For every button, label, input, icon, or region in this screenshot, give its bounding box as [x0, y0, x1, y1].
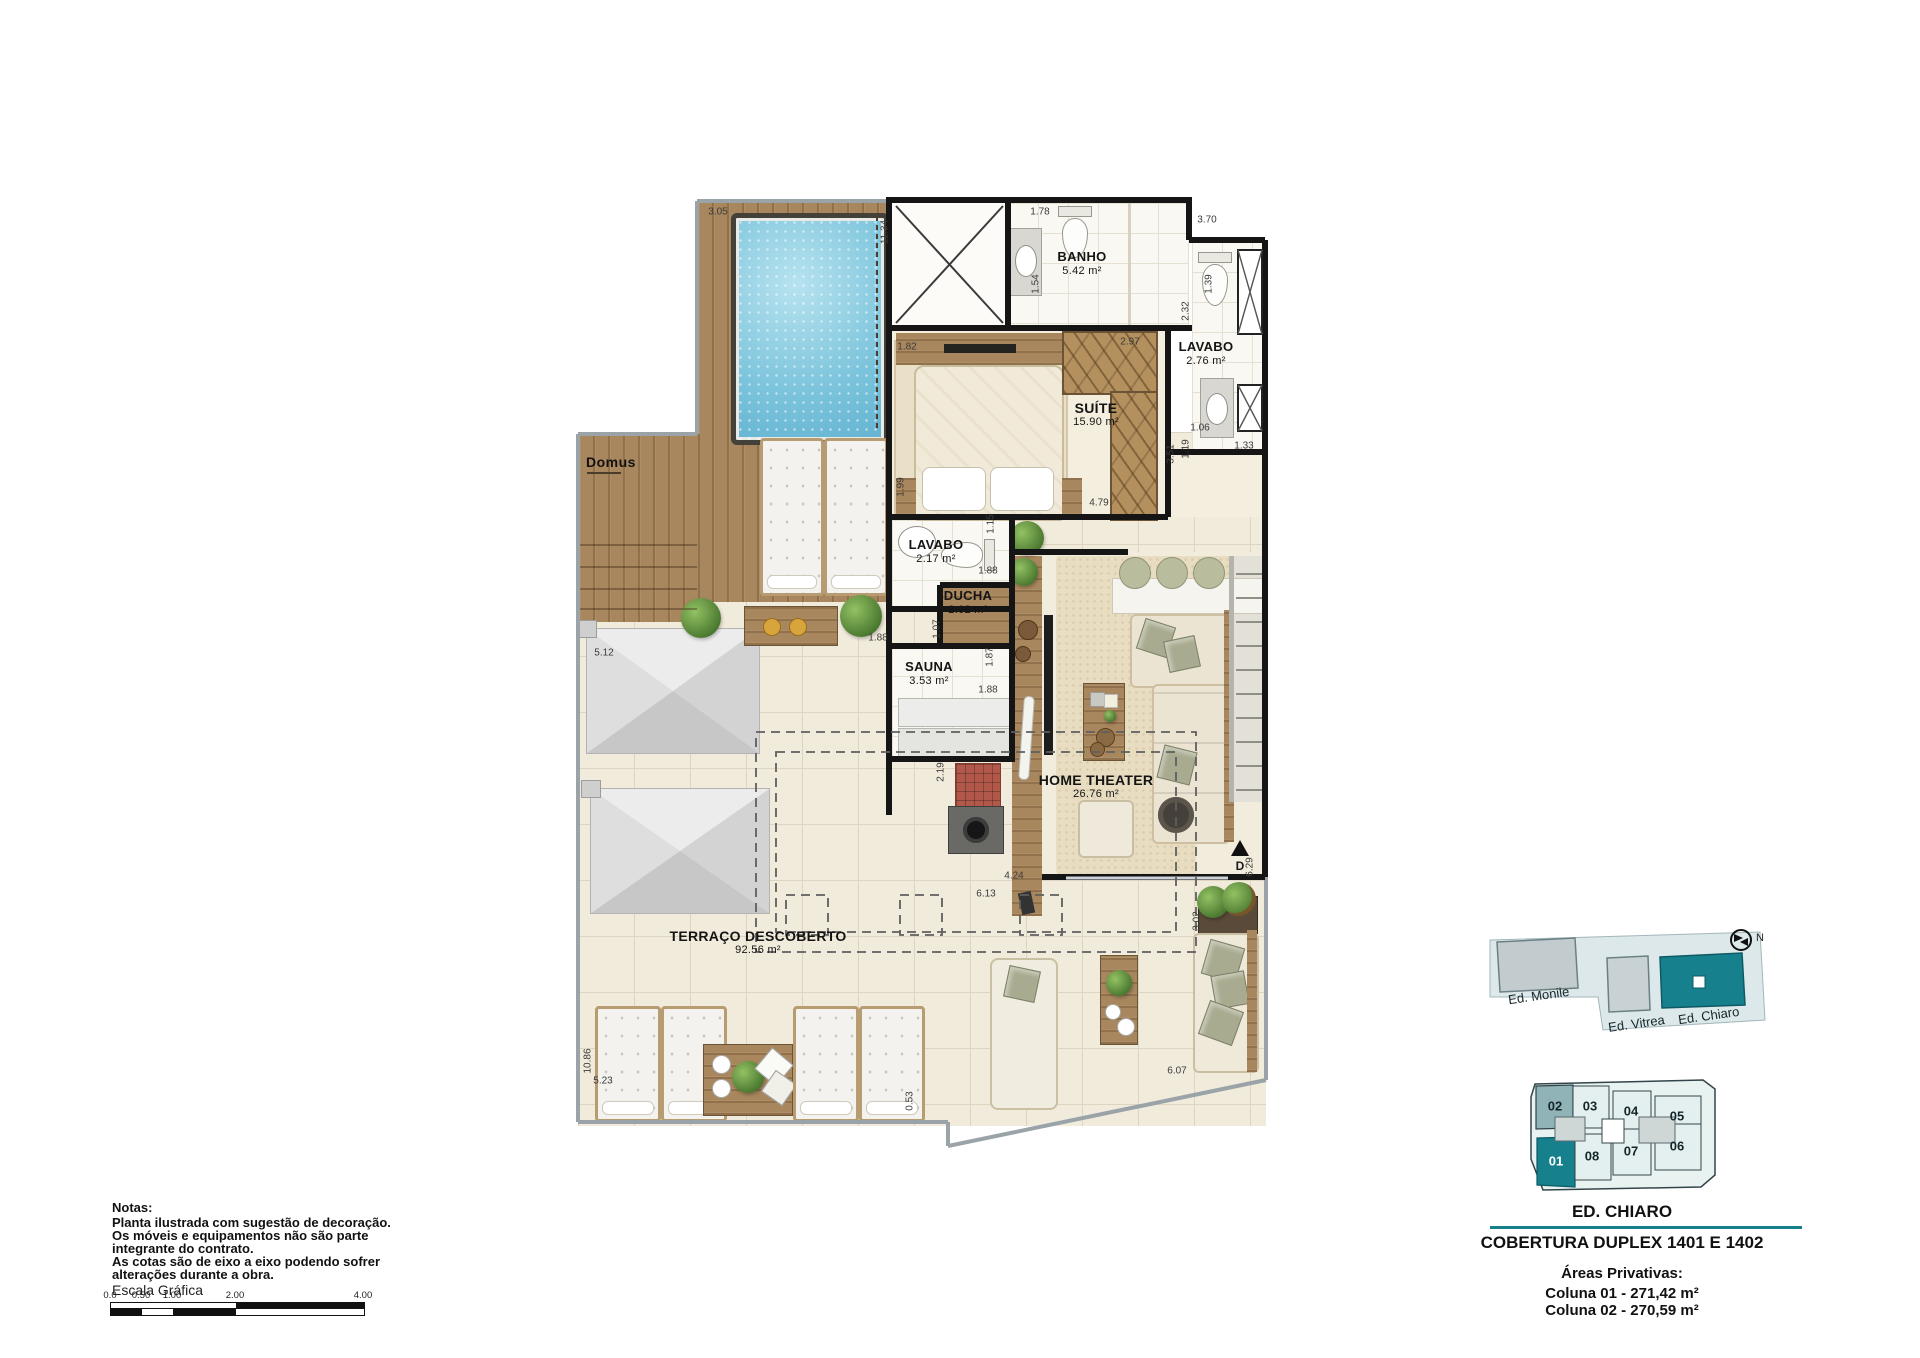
dim-1-82: 1.82	[897, 342, 916, 353]
dim-1-99: 1.99	[896, 477, 907, 496]
dim-1-07: 1.07	[932, 619, 943, 638]
dim-3-70: 3.70	[1197, 215, 1216, 226]
stair-direction-label: D	[1236, 859, 1245, 873]
scale-bar: 0.0 0.50 1.00 2.00 4.00	[110, 1290, 370, 1318]
scale-midline	[111, 1308, 364, 1309]
dim-1-88-b: 1.88	[868, 633, 887, 644]
domus-logo-tagline-bar	[587, 472, 621, 474]
core-void	[1602, 1119, 1624, 1143]
dim-4-24: 4.24	[1004, 871, 1023, 882]
areas-title: Áreas Privativas:	[1561, 1265, 1683, 1282]
scale-tick: 0.50	[132, 1290, 151, 1301]
room-area: 92.56 m²	[669, 944, 846, 957]
unit-number-04: 04	[1624, 1104, 1638, 1119]
room-area: 3.53 m²	[905, 675, 953, 688]
dim-5-23: 5.23	[593, 1076, 612, 1087]
dim-2-32: 2.32	[1181, 301, 1192, 320]
unit-number-08: 08	[1585, 1149, 1599, 1164]
scale-tick: 2.00	[226, 1290, 245, 1301]
dim-2-19: 2.19	[936, 762, 947, 781]
unit-number-05: 05	[1670, 1109, 1684, 1124]
dim-1-54: 1.54	[1031, 274, 1042, 293]
room-label-suite: SUÍTE 15.90 m²	[1073, 400, 1119, 429]
room-name: SAUNA	[905, 660, 953, 675]
scale-bar-ruler	[110, 1302, 365, 1316]
floor-plan-sheet: BANHO 5.42 m² LAVABO 2.76 m² SUÍTE 15.90…	[0, 0, 1920, 1358]
dim-0-53: 0.53	[905, 1091, 916, 1110]
dim-1-19: 1.19	[1181, 439, 1192, 458]
scale-segment	[173, 1309, 236, 1315]
plan-title: COBERTURA DUPLEX 1401 E 1402	[1481, 1233, 1764, 1253]
north-arrow-blade	[1740, 938, 1748, 946]
room-label-terraco: TERRAÇO DESCOBERTO 92.56 m²	[669, 928, 846, 957]
north-arrow-icon	[1730, 929, 1752, 951]
building-vitrea-shape	[1607, 956, 1650, 1012]
room-area: 2.17 m²	[909, 553, 964, 566]
room-area: 2.02 m²	[944, 604, 992, 617]
dim-3-51: 3.51	[1166, 444, 1177, 463]
scale-tick: 1.00	[163, 1290, 182, 1301]
stair-direction-arrow	[1231, 840, 1249, 856]
room-name: LAVABO	[909, 538, 964, 553]
area-coluna-01: Coluna 01 - 271,42 m²	[1545, 1285, 1698, 1302]
north-arrow-blade	[1734, 934, 1743, 942]
unit-number-03: 03	[1583, 1099, 1597, 1114]
notes-title: Notas:	[112, 1200, 152, 1215]
area-coluna-02: Coluna 02 - 270,59 m²	[1545, 1302, 1698, 1319]
unit-number-07: 07	[1624, 1144, 1638, 1159]
room-name: LAVABO	[1179, 340, 1234, 355]
room-name: HOME THEATER	[1039, 772, 1154, 788]
dim-1-15: 1.15	[986, 514, 997, 533]
scale-tick: 0.0	[103, 1290, 116, 1301]
dim-1-87: 1.87	[985, 647, 996, 666]
unit-number-06: 06	[1670, 1139, 1684, 1154]
dim-1-33: 1.33	[1234, 441, 1253, 452]
north-label: N	[1756, 932, 1764, 944]
room-label-lavabo-suite: LAVABO 2.76 m²	[1179, 340, 1234, 368]
scale-segment	[111, 1309, 142, 1315]
room-area: 5.42 m²	[1057, 265, 1106, 278]
dim-2-97: 2.97	[1120, 337, 1139, 348]
dim-1-06: 1.06	[1190, 423, 1209, 434]
core-shape	[1555, 1117, 1585, 1141]
room-area: 26.76 m²	[1039, 788, 1154, 801]
room-name: BANHO	[1057, 250, 1106, 265]
unit-number-02: 02	[1548, 1099, 1562, 1114]
dim-6-13: 6.13	[976, 889, 995, 900]
dim-5-12: 5.12	[594, 648, 613, 659]
dim-1-78: 1.78	[1030, 207, 1049, 218]
dim-4-79: 4.79	[1089, 498, 1108, 509]
room-label-banho: BANHO 5.42 m²	[1057, 250, 1106, 278]
scale-tick: 4.00	[354, 1290, 373, 1301]
dim-3-05: 3.05	[708, 207, 727, 218]
room-area: 15.90 m²	[1073, 416, 1119, 429]
dim-1-88-c: 1.88	[978, 685, 997, 696]
dim-1-88-a: 1.88	[978, 566, 997, 577]
building-title: ED. CHIARO	[1572, 1202, 1672, 1222]
room-name: TERRAÇO DESCOBERTO	[669, 928, 846, 944]
notes-line: alterações durante a obra.	[112, 1267, 274, 1282]
dim-6-29: 6.29	[1245, 857, 1256, 876]
title-divider	[1490, 1226, 1802, 1229]
unit-number-01: 01	[1549, 1154, 1563, 1169]
room-name: SUÍTE	[1073, 400, 1119, 416]
room-label-lavabo: LAVABO 2.17 m²	[909, 538, 964, 566]
dim-3-02: 3.02	[1192, 911, 1203, 930]
room-label-home-theater: HOME THEATER 26.76 m²	[1039, 772, 1154, 801]
domus-logo: Domus	[586, 454, 636, 470]
dim-6-07: 6.07	[1167, 1066, 1186, 1077]
dim-11-34: 11.34	[880, 220, 891, 244]
room-label-sauna: SAUNA 3.53 m²	[905, 660, 953, 688]
room-area: 2.76 m²	[1179, 355, 1234, 368]
dim-10-86: 10.86	[583, 1048, 594, 1073]
room-name: DUCHA	[944, 589, 992, 604]
unit-key-plan	[1525, 1075, 1725, 1195]
room-label-ducha: DUCHA 2.02 m²	[944, 589, 992, 617]
dim-1-39: 1.39	[1204, 274, 1215, 293]
